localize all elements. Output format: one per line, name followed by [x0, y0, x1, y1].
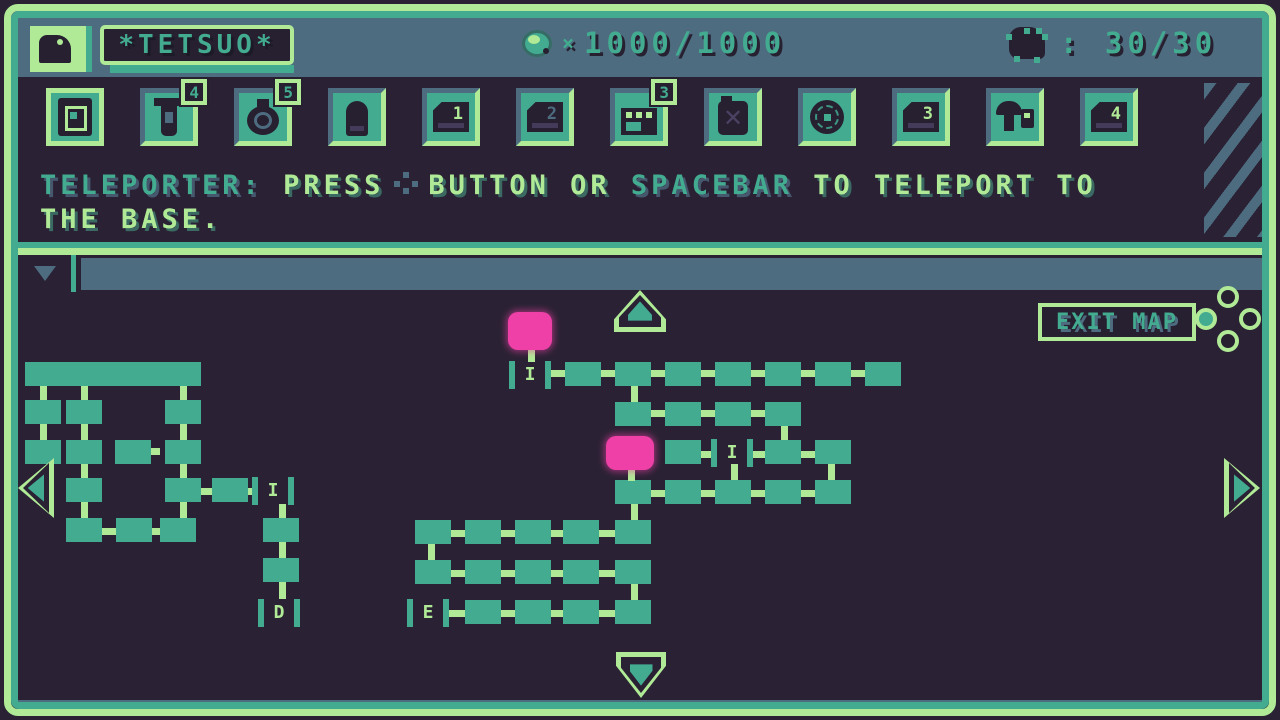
map-corridor — [751, 451, 765, 458]
map-corridor — [180, 464, 187, 478]
map-door-E: E — [407, 599, 449, 627]
controller-button-cluster — [1194, 286, 1264, 354]
map-room — [263, 558, 299, 582]
map-pin-marker — [606, 436, 654, 470]
map-corridor — [201, 488, 212, 495]
map-room — [263, 518, 299, 542]
map-room — [815, 440, 851, 464]
door-bar — [443, 599, 449, 627]
map-door-I: I — [711, 439, 753, 467]
map-corridor — [631, 504, 638, 520]
door-letter: E — [423, 604, 434, 622]
map-room — [115, 440, 151, 464]
map-corridor — [40, 386, 47, 400]
map-room — [66, 400, 102, 424]
scroll-down-arrow[interactable] — [616, 652, 666, 698]
map-corridor — [451, 530, 465, 537]
bottom-slate-line — [18, 700, 1262, 706]
map-corridor — [651, 410, 665, 417]
map-corridor — [81, 386, 88, 400]
map-room — [25, 400, 61, 424]
door-bar — [294, 599, 300, 627]
map-room — [615, 520, 651, 544]
door-bar — [711, 439, 717, 467]
map-room — [415, 520, 451, 544]
map-room — [615, 362, 651, 386]
map-dropdown-tab[interactable] — [18, 255, 76, 292]
map-door-I: I — [509, 361, 551, 389]
map-room — [615, 480, 651, 504]
map-room — [515, 520, 551, 544]
map-corridor — [631, 584, 638, 600]
map-room — [415, 560, 451, 584]
map-room — [715, 402, 751, 426]
map-room — [865, 362, 901, 386]
map-room — [465, 600, 501, 624]
door-bar — [258, 599, 264, 627]
map-corridor — [551, 610, 563, 617]
map-room — [665, 402, 701, 426]
map-door-I: I — [252, 477, 294, 505]
map-room — [615, 402, 651, 426]
map-corridor — [701, 490, 715, 497]
cluster-left-button[interactable] — [1195, 308, 1217, 330]
map-room — [715, 362, 751, 386]
map-room — [116, 518, 152, 542]
map-room — [565, 362, 601, 386]
map-corridor — [102, 528, 116, 535]
cluster-top-button[interactable] — [1217, 286, 1239, 308]
map-corridor — [801, 490, 815, 497]
map-corridor — [449, 610, 465, 617]
map-room — [815, 362, 851, 386]
map-room — [465, 520, 501, 544]
map-corridor — [701, 410, 715, 417]
map-corridor — [701, 370, 715, 377]
map-room — [25, 362, 201, 386]
door-bar — [407, 599, 413, 627]
map-corridor — [651, 490, 665, 497]
map-room — [615, 560, 651, 584]
map-corridor — [631, 386, 638, 402]
map-corridor — [279, 504, 286, 518]
map-corridor — [801, 451, 815, 458]
map-room — [765, 480, 801, 504]
map-corridor — [152, 528, 160, 535]
map-corridor — [180, 424, 187, 440]
exit-map-label: EXIT MAP — [1056, 310, 1178, 335]
map-room — [165, 440, 201, 464]
map-pin-marker — [508, 312, 552, 350]
map-corridor — [651, 370, 665, 377]
map-door-D: D — [258, 599, 300, 627]
map-corridor — [81, 464, 88, 478]
map-corridor — [751, 370, 765, 377]
map-room — [515, 600, 551, 624]
map-corridor — [451, 570, 465, 577]
map-corridor — [599, 570, 615, 577]
exit-map-button[interactable]: EXIT MAP — [1038, 303, 1196, 341]
map-room — [715, 480, 751, 504]
map-corridor — [180, 386, 187, 400]
map-room — [665, 440, 701, 464]
map-corridor — [528, 348, 535, 362]
map-corridor — [599, 610, 615, 617]
door-bar — [509, 361, 515, 389]
door-letter: I — [525, 366, 536, 384]
map-room — [66, 440, 102, 464]
map-corridor — [501, 570, 515, 577]
cluster-bottom-button[interactable] — [1217, 330, 1239, 352]
cluster-right-button[interactable] — [1239, 308, 1261, 330]
scroll-right-arrow[interactable] — [1224, 458, 1260, 518]
map-room — [615, 600, 651, 624]
map-corridor — [551, 570, 563, 577]
map-room — [165, 478, 201, 502]
scroll-left-arrow[interactable] — [18, 458, 54, 518]
map-room — [212, 478, 248, 502]
map-room — [66, 478, 102, 502]
map-corridor — [551, 530, 563, 537]
door-bar — [252, 477, 258, 505]
map-room — [165, 400, 201, 424]
map-corridor — [781, 426, 788, 440]
map-room — [563, 560, 599, 584]
map-corridor — [428, 544, 435, 560]
door-bar — [288, 477, 294, 505]
map-corridor — [751, 410, 765, 417]
door-letter: I — [727, 444, 738, 462]
map-corridor — [501, 610, 515, 617]
scroll-up-arrow[interactable] — [614, 290, 666, 332]
map-room — [765, 440, 801, 464]
game-screen: *TETSUO* × 1000/1000 : 30/30 4512334 TEL… — [0, 0, 1280, 720]
map-corridor — [751, 490, 765, 497]
map-corridor — [81, 424, 88, 440]
map-room — [815, 480, 851, 504]
map-room — [465, 560, 501, 584]
map-corridor — [501, 530, 515, 537]
map-corridor — [828, 464, 835, 480]
map-room — [665, 480, 701, 504]
map-room — [665, 362, 701, 386]
door-letter: I — [268, 482, 279, 500]
map-corridor — [851, 370, 865, 377]
map-corridor — [81, 502, 88, 518]
door-letter: D — [274, 604, 285, 622]
map-corridor — [180, 502, 187, 518]
map-room — [563, 600, 599, 624]
map-room — [765, 402, 801, 426]
map-corridor — [801, 370, 815, 377]
map-room — [515, 560, 551, 584]
map-corridor — [601, 370, 615, 377]
map-room — [66, 518, 102, 542]
map-corridor — [40, 424, 47, 440]
map-canvas: IDIIE — [0, 0, 1280, 720]
door-bar — [545, 361, 551, 389]
map-corridor — [279, 582, 286, 599]
map-room — [765, 362, 801, 386]
door-bar — [747, 439, 753, 467]
map-corridor — [151, 448, 160, 455]
chevron-down-icon — [34, 266, 56, 281]
map-room — [160, 518, 196, 542]
map-corridor — [599, 530, 615, 537]
map-corridor — [279, 542, 286, 558]
map-room — [563, 520, 599, 544]
